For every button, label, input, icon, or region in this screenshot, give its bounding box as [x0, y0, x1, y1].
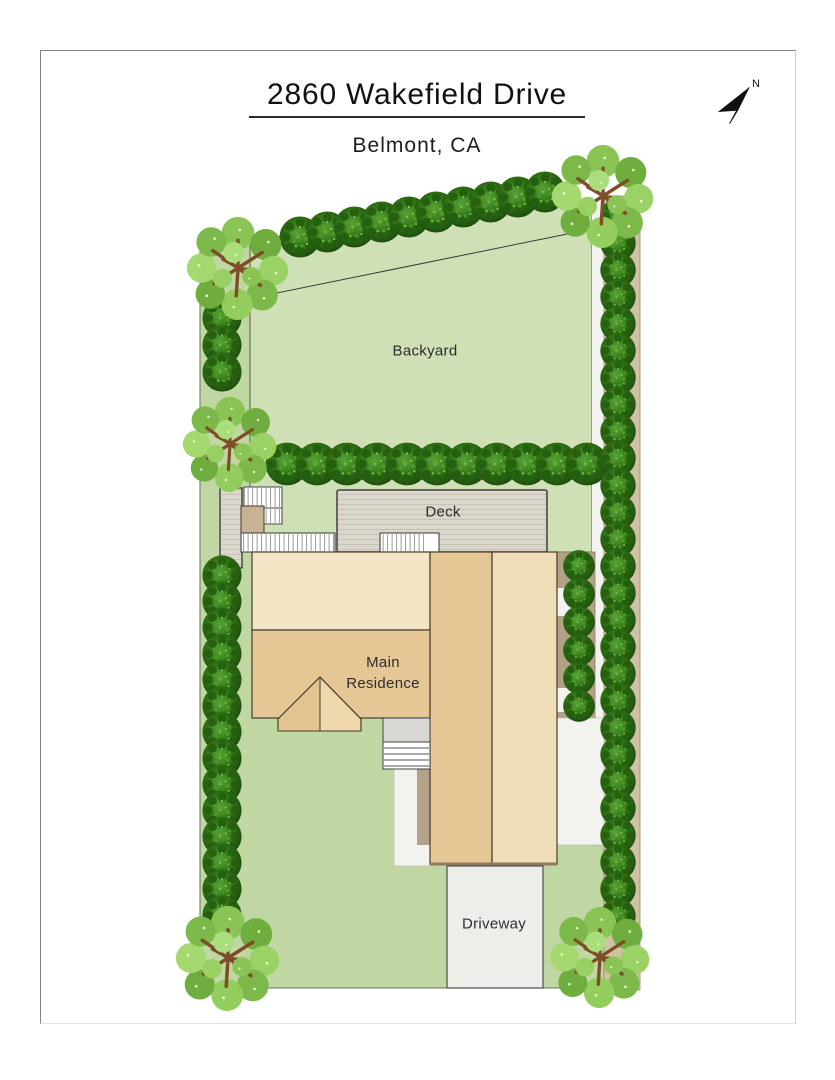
tree-icon [552, 145, 653, 248]
south-walkway-edge [417, 769, 430, 845]
bush-icon [563, 578, 595, 610]
tree-icon [550, 907, 649, 1008]
upper-stairs-b-treads [265, 509, 281, 523]
bush-icon [563, 550, 595, 582]
deck-label: Deck [425, 502, 460, 523]
bush-icon [563, 690, 595, 722]
tree-icon [176, 906, 279, 1011]
upper-stairs-a-treads [245, 488, 281, 507]
bush-icon [563, 662, 595, 694]
bush-icon [202, 352, 241, 391]
bush-icon [563, 606, 595, 638]
driveway-label: Driveway [462, 914, 526, 935]
south-stairs [383, 742, 430, 769]
residence-wing-light [492, 552, 557, 864]
north-arrow-icon [715, 80, 749, 126]
title-underline [249, 116, 585, 118]
long-stairs-treads [242, 534, 334, 551]
deck-stairs-treads [382, 534, 427, 551]
site-plan-drawing [0, 0, 835, 1080]
stair-landing [241, 506, 264, 533]
site-plan-page: 2860 Wakefield Drive Belmont, CA N Backy… [0, 0, 835, 1080]
page-subtitle: Belmont, CA [353, 134, 482, 158]
tree-icon [187, 217, 288, 320]
page-title: 2860 Wakefield Drive [267, 78, 567, 112]
right-walkway [557, 718, 604, 845]
backyard-label: Backyard [393, 341, 458, 362]
tree-icon [183, 397, 277, 492]
main-residence-label: Main Residence [346, 652, 420, 694]
residence-wing-dark [430, 552, 492, 864]
residence-upper-block [252, 552, 430, 630]
bush-icon [563, 634, 595, 666]
north-label: N [752, 78, 760, 90]
side-deck-planks [221, 489, 241, 567]
south-stairs-landing [383, 718, 430, 742]
